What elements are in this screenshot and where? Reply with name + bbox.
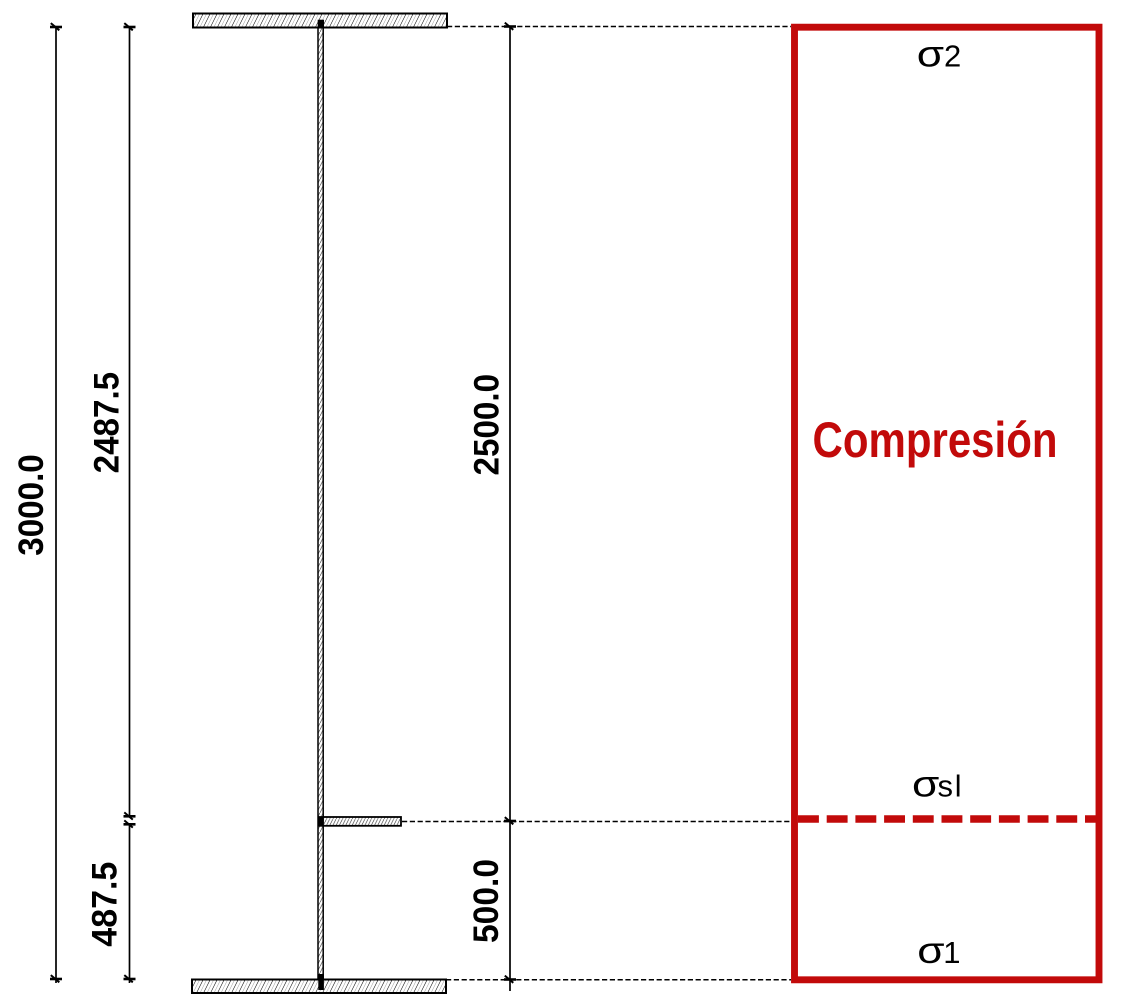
svg-text:3000.0: 3000.0: [12, 454, 51, 556]
svg-text:l: l: [955, 770, 962, 804]
svg-text:Compresión: Compresión: [813, 412, 1058, 468]
svg-text:2500.0: 2500.0: [468, 374, 507, 476]
svg-text:σ: σ: [917, 33, 944, 75]
svg-text:σ: σ: [917, 929, 944, 971]
svg-text:2487.5: 2487.5: [88, 372, 127, 474]
svg-text:σ: σ: [912, 763, 939, 805]
svg-text:487.5: 487.5: [85, 862, 124, 947]
svg-text:1: 1: [943, 935, 960, 970]
svg-text:2: 2: [944, 39, 961, 74]
svg-text:s: s: [938, 769, 954, 804]
svg-text:500.0: 500.0: [467, 859, 506, 943]
